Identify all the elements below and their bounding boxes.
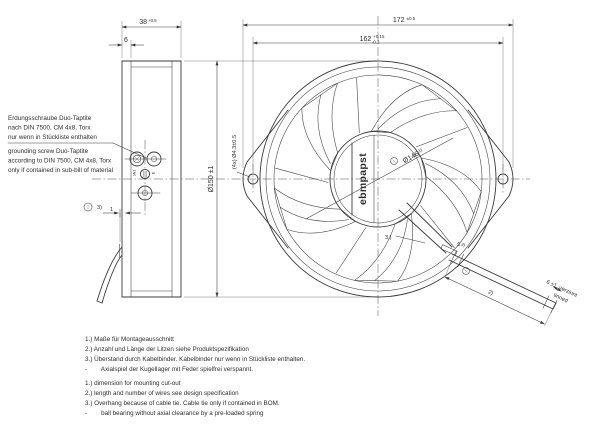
grounding-note-en: grounding screw Duo-Taptite <box>8 148 89 155</box>
terminal-label-right: E <box>152 171 156 174</box>
side-view: 3N1 E 3) 1 <box>84 61 181 303</box>
rear-strut <box>336 228 366 274</box>
fan-blade <box>302 83 338 170</box>
svg-text:Ø150 ±1: Ø150 ±1 <box>208 165 215 192</box>
svg-text:according to DIN 7500, CM 4x8,: according to DIN 7500, CM 4x8, Torx <box>8 158 112 165</box>
ebmpapst-logo: ebmpapst <box>357 153 369 205</box>
svg-text:nur wenn in Stückliste enthalt: nur wenn in Stückliste enthalten <box>8 134 97 141</box>
mounting-ear-right <box>468 110 513 248</box>
rear-strut <box>357 78 360 132</box>
dimension-diameter-146: Ø1461) <box>306 138 453 219</box>
dimension-cable-length: 2) <box>445 263 552 326</box>
rear-strut <box>276 168 329 182</box>
svg-text:(4x) Ø4.3±0.5: (4x) Ø4.3±0.5 <box>232 135 238 169</box>
svg-text:only if contained in sub-bill: only if contained in sub-bill of materia… <box>8 167 113 174</box>
side-cable <box>97 213 122 303</box>
footnotes-english: 1.) dimension for mounting cut-out 2.) l… <box>85 380 280 417</box>
fan-dimension-drawing: 3N1 E 3) 1 38+0.5 6 <box>0 0 600 429</box>
svg-text:- Axialspiel der Kugell: - Axialspiel der Kugellager mit Feder sp… <box>85 366 253 373</box>
svg-text:1.) Maße für Montageausschnitt: 1.) Maße für Montageausschnitt <box>85 336 174 343</box>
svg-text:2): 2) <box>487 289 494 297</box>
overhang-value: 1 <box>110 207 113 213</box>
svg-text:38+0.5: 38+0.5 <box>139 18 157 26</box>
dimension-flange-6: 6 <box>109 37 144 58</box>
footnotes-german: 1.) Maße für Montageausschnitt 2.) Anzah… <box>85 336 305 373</box>
svg-text:3.) Overhang because of cable: 3.) Overhang because of cable tie. Cable… <box>85 400 280 407</box>
svg-text:6: 6 <box>124 37 128 44</box>
svg-text:3.) Überstand durch Kabelbinde: 3.) Überstand durch Kabelbinder. Kabelbi… <box>85 355 305 363</box>
fan-blade <box>421 158 481 233</box>
technical-drawing-page: 3N1 E 3) 1 38+0.5 6 <box>0 0 600 429</box>
fan-blade <box>355 214 413 282</box>
fan-blade <box>371 85 456 133</box>
svg-text:nach DIN 7500, CM 4x8, Torx: nach DIN 7500, CM 4x8, Torx <box>8 125 91 132</box>
svg-text:3.): 3.) <box>385 235 392 241</box>
terminal-label-left: 3N1 <box>133 170 137 177</box>
grounding-note-de: Erdungsschraube Duo-Taptite <box>8 115 92 122</box>
rear-strut <box>420 206 454 248</box>
lead-wires <box>449 254 556 309</box>
dimension-overhang: 3) 1 <box>84 203 141 217</box>
svg-text:172±0.5: 172±0.5 <box>393 16 416 24</box>
wire-channel <box>399 203 457 255</box>
svg-text:- ball bearing without: - ball bearing without axial clearance b… <box>85 410 264 417</box>
cable-tie-note: 3.) <box>385 235 425 243</box>
front-view: ebmpapst Ø1461) 3.) 52) <box>243 61 578 326</box>
fan-blade <box>274 188 355 233</box>
dimension-tinned-end: 6 ±1verzinnt tinned <box>541 279 578 312</box>
svg-text:2.) Anzahl und Länge der Litze: 2.) Anzahl und Länge der Litzen siehe Pr… <box>85 346 249 353</box>
dimension-mounting-holes: (4x) Ø4.3±0.5 <box>232 135 250 177</box>
svg-text:1.) dimension for mounting cut: 1.) dimension for mounting cut-out <box>85 380 181 387</box>
svg-text:Ø1461): Ø1461) <box>401 147 425 165</box>
svg-text:2.) length and number of wires: 2.) length and number of wires see desig… <box>85 390 239 397</box>
grounding-note-block: Erdungsschraube Duo-Taptite nach DIN 750… <box>8 115 146 174</box>
overhang-note-ref: 3) <box>97 205 102 211</box>
